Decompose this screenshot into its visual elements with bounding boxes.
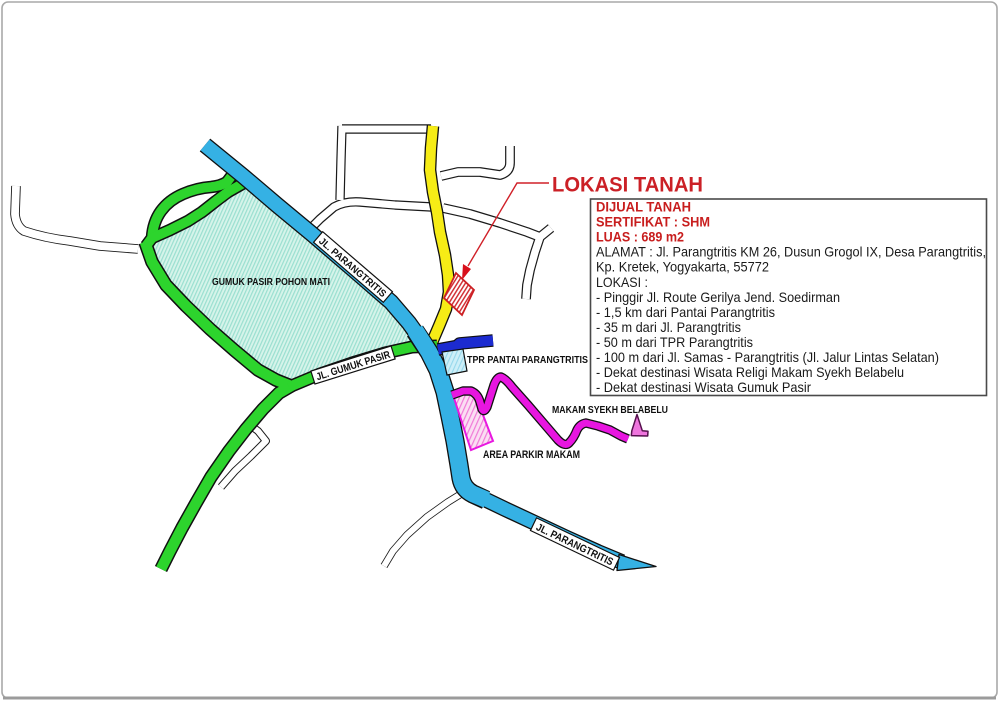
svg-text:LOKASI :: LOKASI : xyxy=(596,275,648,290)
svg-text:TPR PANTAI PARANGTRITIS: TPR PANTAI PARANGTRITIS xyxy=(467,355,588,366)
svg-text:SERTIFIKAT : SHM: SERTIFIKAT : SHM xyxy=(596,215,710,230)
svg-text:- Pinggir Jl. Route Gerilya Je: - Pinggir Jl. Route Gerilya Jend. Soedir… xyxy=(596,290,840,305)
svg-text:LUAS : 689 m2: LUAS : 689 m2 xyxy=(596,230,684,245)
svg-text:DIJUAL TANAH: DIJUAL TANAH xyxy=(596,200,691,215)
svg-text:- 100 m dari Jl. Samas - Paran: - 100 m dari Jl. Samas - Parangtritis (J… xyxy=(596,350,939,365)
svg-text:GUMUK PASIR POHON MATI: GUMUK PASIR POHON MATI xyxy=(212,276,330,288)
svg-text:Kp. Kretek, Yogyakarta, 55772: Kp. Kretek, Yogyakarta, 55772 xyxy=(596,260,769,275)
svg-text:- 35 m dari Jl. Parangtritis: - 35 m dari Jl. Parangtritis xyxy=(596,320,741,335)
svg-text:MAKAM SYEKH BELABELU: MAKAM SYEKH BELABELU xyxy=(552,404,668,416)
svg-text:- 50 m dari TPR Parangtritis: - 50 m dari TPR Parangtritis xyxy=(596,335,753,350)
svg-text:AREA PARKIR MAKAM: AREA PARKIR MAKAM xyxy=(483,449,580,461)
svg-text:- 1,5 km dari Pantai Parangtri: - 1,5 km dari Pantai Parangtritis xyxy=(596,305,775,320)
svg-text:- Dekat destinasi Wisata Relig: - Dekat destinasi Wisata Religi Makam Sy… xyxy=(596,365,904,380)
svg-text:- Dekat destinasi Wisata Gumuk: - Dekat destinasi Wisata Gumuk Pasir xyxy=(596,380,811,395)
svg-text:LOKASI TANAH: LOKASI TANAH xyxy=(552,173,703,197)
svg-text:ALAMAT : Jl. Parangtritis KM 2: ALAMAT : Jl. Parangtritis KM 26, Dusun G… xyxy=(596,245,986,260)
